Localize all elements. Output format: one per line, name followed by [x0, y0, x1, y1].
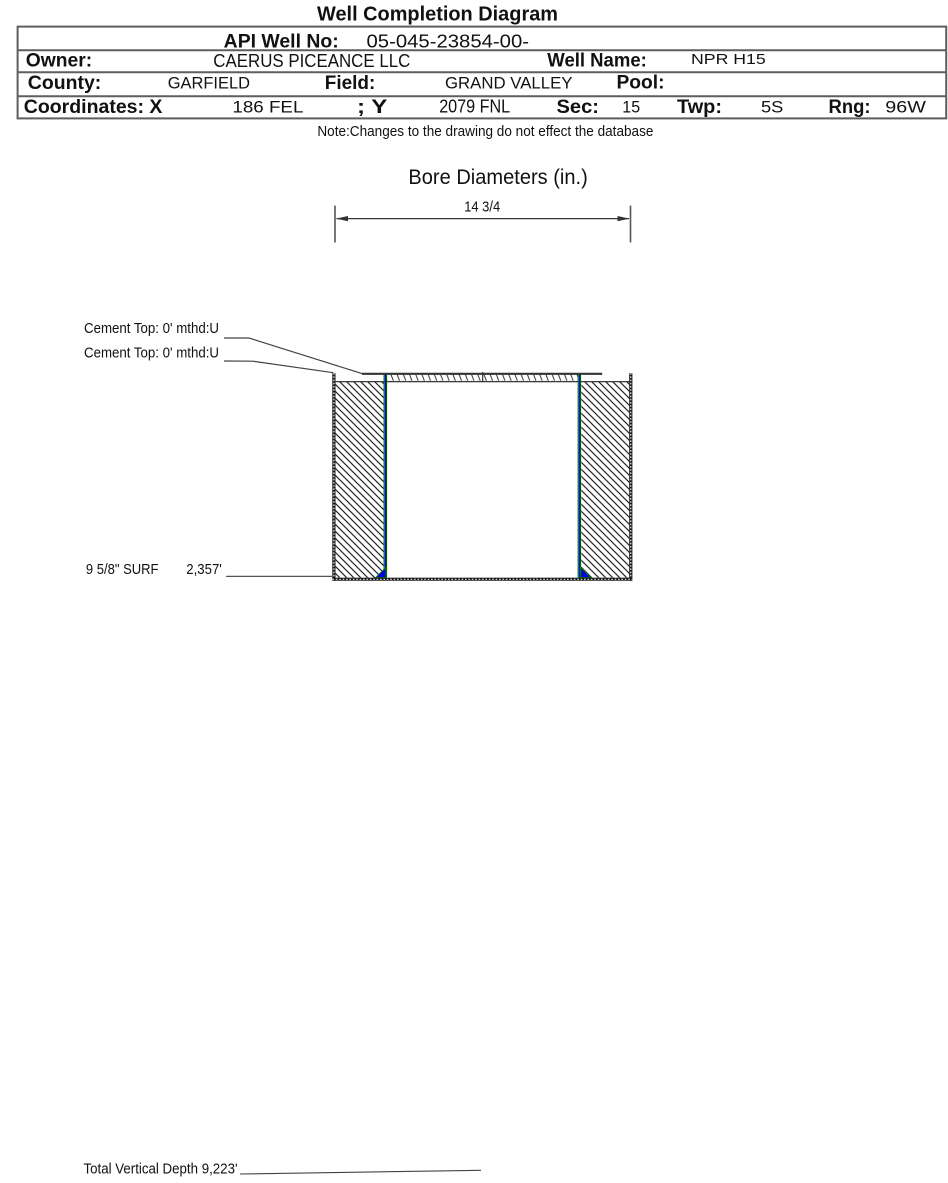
- svg-text:GRAND VALLEY: GRAND VALLEY: [445, 74, 573, 93]
- svg-text:Bore Diameters (in.): Bore Diameters (in.): [408, 166, 587, 189]
- svg-text:Well Name:: Well Name:: [547, 50, 647, 71]
- svg-text:Cement Top: 0' mthd:U: Cement Top: 0' mthd:U: [84, 346, 219, 362]
- svg-text:14 3/4: 14 3/4: [464, 199, 500, 215]
- svg-text:5S: 5S: [761, 98, 783, 117]
- svg-text:; Y: ; Y: [357, 97, 388, 118]
- svg-text:186 FEL: 186 FEL: [232, 98, 303, 117]
- svg-text:96W: 96W: [885, 98, 926, 117]
- svg-text:Sec:: Sec:: [557, 97, 600, 118]
- svg-text:Rng:: Rng:: [829, 97, 871, 118]
- svg-text:Well Completion Diagram: Well Completion Diagram: [317, 4, 558, 26]
- svg-text:County:: County:: [28, 73, 102, 94]
- svg-text:Note:Changes to the drawing do: Note:Changes to the drawing do not effec…: [317, 124, 653, 140]
- svg-text:Pool:: Pool:: [617, 73, 665, 94]
- svg-text:Field:: Field:: [325, 73, 376, 94]
- svg-text:Total Vertical Depth 9,223': Total Vertical Depth 9,223': [84, 1161, 238, 1178]
- svg-text:API Well No:: API Well No:: [224, 31, 339, 52]
- svg-text:NPR H15: NPR H15: [691, 52, 766, 68]
- svg-text:2,357': 2,357': [186, 562, 222, 578]
- svg-text:15: 15: [622, 98, 640, 117]
- svg-text:Owner:: Owner:: [26, 50, 92, 71]
- svg-text:9 5/8" SURF: 9 5/8" SURF: [86, 562, 159, 578]
- svg-text:Cement Top: 0' mthd:U: Cement Top: 0' mthd:U: [84, 321, 219, 337]
- svg-text:2079 FNL: 2079 FNL: [439, 97, 510, 117]
- svg-text:05-045-23854-00-: 05-045-23854-00-: [367, 31, 530, 52]
- svg-text:Twp:: Twp:: [677, 97, 722, 118]
- svg-text:CAERUS PICEANCE LLC: CAERUS PICEANCE LLC: [213, 51, 410, 71]
- svg-text:Coordinates: X: Coordinates: X: [24, 97, 163, 118]
- svg-text:GARFIELD: GARFIELD: [168, 75, 250, 93]
